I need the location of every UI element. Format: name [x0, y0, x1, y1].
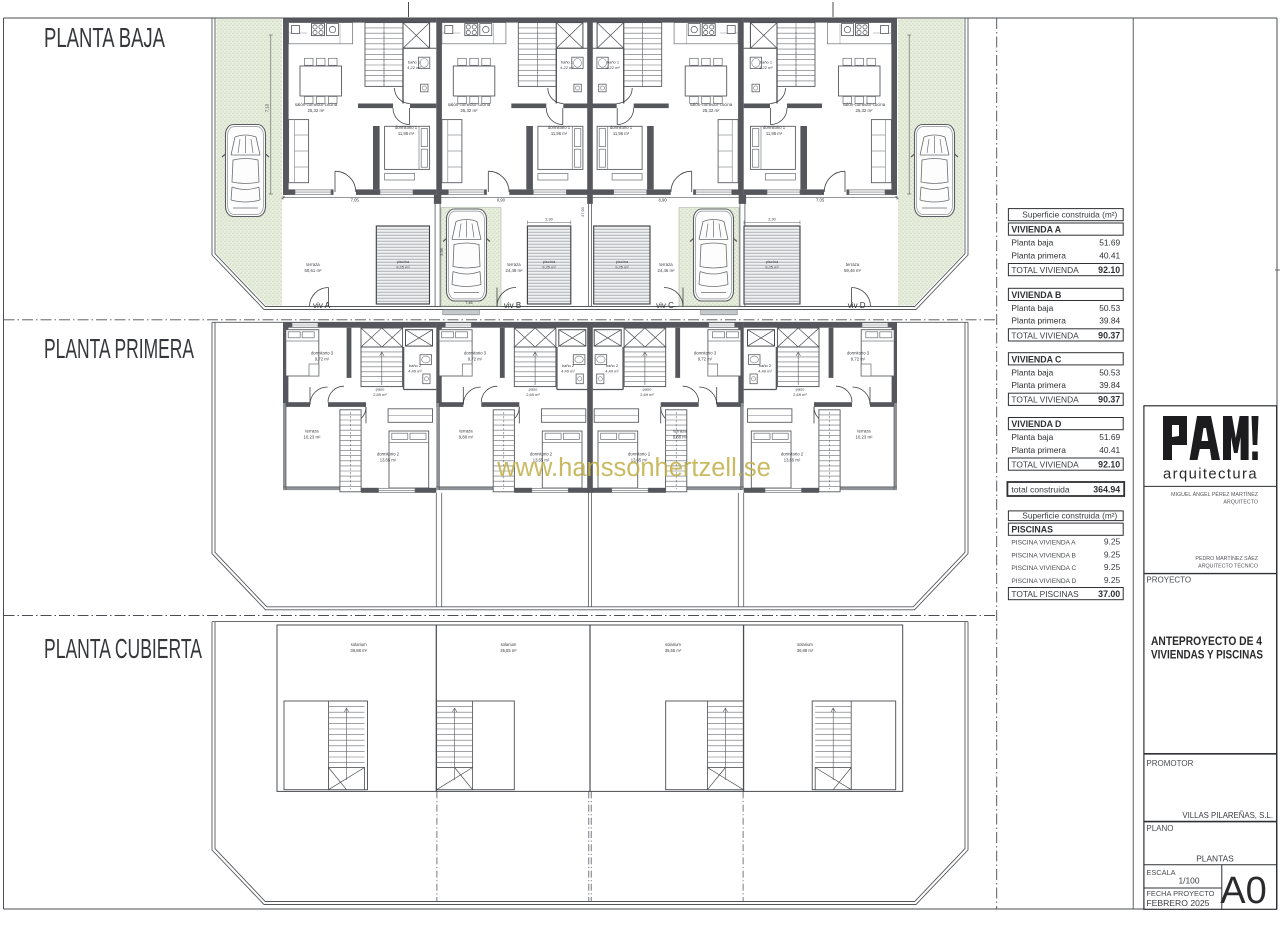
svg-text:9,72 m²: 9,72 m²	[468, 356, 483, 361]
svg-text:13,65 m²: 13,65 m²	[380, 457, 397, 462]
svg-text:ANTEPROYECTO DE 4: ANTEPROYECTO DE 4	[1151, 634, 1262, 648]
svg-text:50.53: 50.53	[1099, 367, 1120, 377]
svg-text:11,96 m²: 11,96 m²	[766, 131, 783, 136]
svg-text:dormitorio 1: dormitorio 1	[610, 125, 633, 130]
svg-text:1/100: 1/100	[1179, 876, 1200, 886]
svg-text:4,49 m²: 4,49 m²	[758, 368, 772, 373]
svg-text:PLANTA CUBIERTA: PLANTA CUBIERTA	[44, 633, 202, 664]
svg-text:25,32 m²: 25,32 m²	[461, 108, 479, 113]
svg-text:baño 1: baño 1	[607, 60, 620, 65]
svg-text:37.00: 37.00	[1098, 589, 1120, 599]
svg-text:MIGUEL ÁNGEL PÉREZ MARTÍNEZ: MIGUEL ÁNGEL PÉREZ MARTÍNEZ	[1171, 491, 1259, 498]
svg-text:baño 1: baño 1	[760, 60, 773, 65]
svg-text:4,49 m²: 4,49 m²	[561, 368, 575, 373]
svg-text:dormitorio 1: dormitorio 1	[395, 125, 418, 130]
svg-text:dormitorio 3: dormitorio 3	[311, 351, 334, 356]
svg-text:Planta primera: Planta primera	[1011, 316, 1066, 326]
svg-text:9,25 m²: 9,25 m²	[765, 265, 779, 270]
svg-text:piscina: piscina	[543, 259, 556, 264]
svg-text:4,22 m²: 4,22 m²	[759, 65, 773, 70]
svg-text:terraza: terraza	[305, 429, 319, 434]
svg-text:35,55 m²: 35,55 m²	[500, 648, 517, 653]
svg-text:terraza: terraza	[306, 262, 320, 267]
svg-text:2,69 m²: 2,69 m²	[373, 392, 387, 397]
svg-text:dormitorio 3: dormitorio 3	[694, 351, 717, 356]
svg-text:11,96 m²: 11,96 m²	[551, 131, 568, 136]
svg-text:solarium: solarium	[665, 642, 681, 647]
svg-text:39.84: 39.84	[1099, 380, 1120, 390]
svg-text:baño 2: baño 2	[606, 363, 619, 368]
svg-text:25,32 m²: 25,32 m²	[308, 108, 326, 113]
svg-text:13,65 m²: 13,65 m²	[631, 457, 648, 462]
svg-text:FECHA PROYECTO: FECHA PROYECTO	[1146, 889, 1214, 898]
svg-text:7,05: 7,05	[351, 198, 360, 203]
svg-text:24,48 m²: 24,48 m²	[506, 268, 524, 273]
svg-text:FEBRERO 2025: FEBRERO 2025	[1146, 898, 1209, 908]
svg-text:7,10: 7,10	[265, 103, 270, 112]
svg-text:Planta baja: Planta baja	[1011, 432, 1053, 442]
svg-text:92.10: 92.10	[1098, 265, 1120, 275]
svg-text:50.53: 50.53	[1099, 303, 1120, 313]
svg-text:VIVIENDA B: VIVIENDA B	[1011, 290, 1061, 300]
svg-text:dormitorio 2: dormitorio 2	[781, 452, 804, 457]
svg-text:40.41: 40.41	[1099, 250, 1120, 260]
svg-text:2,69 m²: 2,69 m²	[793, 392, 807, 397]
svg-text:PISCINA VIVIENDA B: PISCINA VIVIENDA B	[1011, 552, 1076, 559]
svg-text:25,32 m²: 25,32 m²	[703, 108, 721, 113]
svg-text:4,49 m²: 4,49 m²	[408, 368, 422, 373]
svg-text:solarium: solarium	[501, 642, 517, 647]
svg-text:VIVIENDA A: VIVIENDA A	[1011, 225, 1061, 235]
svg-text:13,65 m²: 13,65 m²	[533, 457, 550, 462]
svg-text:2,69 m²: 2,69 m²	[640, 392, 654, 397]
svg-text:2,30: 2,30	[545, 218, 552, 222]
svg-text:11,96 m²: 11,96 m²	[613, 131, 630, 136]
svg-text:dormitorio 2: dormitorio 2	[530, 452, 553, 457]
svg-text:90.37: 90.37	[1098, 330, 1120, 340]
svg-text:92.10: 92.10	[1098, 460, 1120, 470]
svg-text:paso: paso	[643, 387, 652, 392]
svg-text:51.69: 51.69	[1099, 432, 1120, 442]
svg-text:PLANTA PRIMERA: PLANTA PRIMERA	[44, 333, 194, 364]
svg-text:4,22 m²: 4,22 m²	[407, 65, 421, 70]
svg-text:dormitorio 1: dormitorio 1	[763, 125, 786, 130]
svg-text:VIVIENDA C: VIVIENDA C	[1011, 354, 1062, 364]
svg-text:VIVIENDAS Y PISCINAS: VIVIENDAS Y PISCINAS	[1151, 648, 1263, 662]
svg-text:40.41: 40.41	[1099, 445, 1120, 455]
svg-text:9,72 m²: 9,72 m²	[315, 356, 330, 361]
svg-text:viv C: viv C	[656, 301, 674, 310]
svg-text:PROMOTOR: PROMOTOR	[1146, 759, 1193, 768]
svg-text:PISCINA VIVIENDA D: PISCINA VIVIENDA D	[1011, 578, 1076, 585]
svg-text:ESCALA: ESCALA	[1146, 868, 1175, 877]
svg-text:9,72 m²: 9,72 m²	[851, 356, 866, 361]
svg-text:10,23 m²: 10,23 m²	[856, 435, 874, 440]
svg-text:TOTAL VIVIENDA: TOTAL VIVIENDA	[1011, 330, 1079, 340]
svg-text:9.25: 9.25	[1104, 562, 1121, 572]
svg-text:baño 1: baño 1	[408, 60, 421, 65]
svg-text:salón-comedor-cocina: salón-comedor-cocina	[690, 102, 733, 107]
svg-text:TOTAL VIVIENDA: TOTAL VIVIENDA	[1011, 265, 1079, 275]
svg-text:9.25: 9.25	[1104, 575, 1121, 585]
svg-text:dormitorio 3: dormitorio 3	[464, 351, 487, 356]
svg-text:PISCINA VIVIENDA C: PISCINA VIVIENDA C	[1011, 565, 1076, 572]
svg-text:total construida: total construida	[1011, 484, 1070, 494]
svg-text:TOTAL VIVIENDA: TOTAL VIVIENDA	[1011, 460, 1079, 470]
svg-text:36,88 m²: 36,88 m²	[350, 648, 367, 653]
svg-text:2,30: 2,30	[768, 218, 775, 222]
svg-text:Planta primera: Planta primera	[1011, 250, 1066, 260]
svg-text:piscina: piscina	[766, 259, 779, 264]
svg-text:piscina: piscina	[616, 259, 629, 264]
svg-text:paso: paso	[376, 387, 385, 392]
svg-text:salón-comedor-cocina: salón-comedor-cocina	[295, 102, 338, 107]
svg-text:39.84: 39.84	[1099, 316, 1120, 326]
svg-text:Planta baja: Planta baja	[1011, 367, 1053, 377]
svg-text:90.37: 90.37	[1098, 395, 1120, 405]
svg-text:terraza: terraza	[846, 262, 860, 267]
svg-text:salón-comedor-cocina: salón-comedor-cocina	[843, 102, 886, 107]
svg-text:paso: paso	[796, 387, 805, 392]
svg-text:PISCINA VIVIENDA A: PISCINA VIVIENDA A	[1011, 540, 1076, 547]
svg-text:Planta primera: Planta primera	[1011, 445, 1066, 455]
svg-text:7,05: 7,05	[816, 198, 825, 203]
svg-text:PLANO: PLANO	[1146, 824, 1173, 833]
svg-text:ARQUITECTO: ARQUITECTO	[1223, 500, 1258, 506]
svg-text:25,32 m²: 25,32 m²	[856, 108, 874, 113]
svg-text:9,72 m²: 9,72 m²	[698, 356, 713, 361]
svg-text:4,22 m²: 4,22 m²	[560, 65, 574, 70]
svg-text:baño 1: baño 1	[561, 60, 574, 65]
svg-text:baño 2: baño 2	[759, 363, 772, 368]
svg-text:36,88 m²: 36,88 m²	[797, 648, 814, 653]
svg-text:PLANTA BAJA: PLANTA BAJA	[44, 22, 165, 53]
svg-text:viv A: viv A	[313, 301, 331, 310]
svg-text:7,46: 7,46	[465, 301, 472, 305]
svg-text:Planta primera: Planta primera	[1011, 380, 1066, 390]
svg-text:9,25 m²: 9,25 m²	[542, 265, 556, 270]
svg-text:dormitorio 2: dormitorio 2	[377, 452, 400, 457]
svg-text:terraza: terraza	[857, 429, 871, 434]
svg-text:Superficie construida (m²): Superficie construida (m²)	[1022, 510, 1117, 520]
svg-text:9,25 m²: 9,25 m²	[615, 265, 629, 270]
svg-text:salón-comedor-cocina: salón-comedor-cocina	[448, 102, 491, 107]
svg-text:ARQUITECTO TÉCNICO: ARQUITECTO TÉCNICO	[1198, 563, 1258, 570]
svg-text:59,46 m²: 59,46 m²	[844, 268, 862, 273]
svg-text:8,90: 8,90	[659, 198, 668, 203]
svg-text:viv D: viv D	[848, 301, 866, 310]
svg-text:dormitorio 3: dormitorio 3	[847, 351, 870, 356]
svg-text:9.25: 9.25	[1104, 537, 1121, 547]
svg-text:Planta baja: Planta baja	[1011, 303, 1053, 313]
svg-text:dormitorio 1: dormitorio 1	[548, 125, 571, 130]
svg-text:Planta baja: Planta baja	[1011, 238, 1053, 248]
svg-text:VIVIENDA D: VIVIENDA D	[1011, 419, 1061, 429]
svg-text:A0: A0	[1220, 870, 1266, 912]
svg-text:paso: paso	[529, 387, 538, 392]
svg-text:terraza: terraza	[673, 429, 687, 434]
svg-text:9,88 m²: 9,88 m²	[459, 435, 474, 440]
svg-text:10,23 m²: 10,23 m²	[304, 435, 322, 440]
svg-text:9,88 m²: 9,88 m²	[673, 435, 688, 440]
svg-text:VILLAS PILAREÑAS, S.L.: VILLAS PILAREÑAS, S.L.	[1182, 811, 1273, 820]
svg-text:baño 2: baño 2	[562, 363, 575, 368]
svg-text:terraza: terraza	[507, 262, 521, 267]
svg-text:4,49 m²: 4,49 m²	[605, 368, 619, 373]
svg-text:4,22 m²: 4,22 m²	[606, 65, 620, 70]
svg-text:terraza: terraza	[459, 429, 473, 434]
svg-text:piscina: piscina	[397, 259, 410, 264]
svg-text:solarium: solarium	[351, 642, 367, 647]
svg-text:TOTAL VIVIENDA: TOTAL VIVIENDA	[1011, 395, 1079, 405]
svg-text:viv B: viv B	[504, 301, 521, 310]
svg-text:PISCINAS: PISCINAS	[1011, 525, 1053, 535]
svg-text:TOTAL PISCINAS: TOTAL PISCINAS	[1011, 589, 1079, 599]
svg-text:24,46 m²: 24,46 m²	[658, 268, 676, 273]
svg-text:PLANTAS: PLANTAS	[1196, 854, 1234, 864]
svg-text:35,55 m²: 35,55 m²	[665, 648, 682, 653]
svg-text:9.25: 9.25	[1104, 549, 1121, 559]
svg-text:dormitorio 2: dormitorio 2	[628, 452, 651, 457]
svg-text:60,61 m²: 60,61 m²	[305, 268, 323, 273]
svg-text:3,98: 3,98	[440, 248, 444, 255]
svg-text:8,90: 8,90	[497, 198, 506, 203]
svg-text:arquitectura: arquitectura	[1163, 467, 1258, 483]
svg-text:solarium: solarium	[797, 642, 813, 647]
svg-text:27,90: 27,90	[581, 207, 585, 217]
svg-text:364.94: 364.94	[1093, 484, 1120, 494]
svg-text:51.69: 51.69	[1099, 238, 1120, 248]
svg-text:PEDRO MARTÍNEZ SÁEZ: PEDRO MARTÍNEZ SÁEZ	[1195, 555, 1258, 562]
svg-text:2,69 m²: 2,69 m²	[526, 392, 540, 397]
svg-text:13,65 m²: 13,65 m²	[784, 457, 801, 462]
svg-text:Superficie construida (m²): Superficie construida (m²)	[1022, 210, 1117, 220]
svg-text:9,25 m²: 9,25 m²	[396, 265, 410, 270]
svg-text:11,96 m²: 11,96 m²	[398, 131, 415, 136]
svg-text:PROYECTO: PROYECTO	[1146, 576, 1191, 585]
svg-text:baño 2: baño 2	[409, 363, 422, 368]
svg-text:terraza: terraza	[659, 262, 673, 267]
